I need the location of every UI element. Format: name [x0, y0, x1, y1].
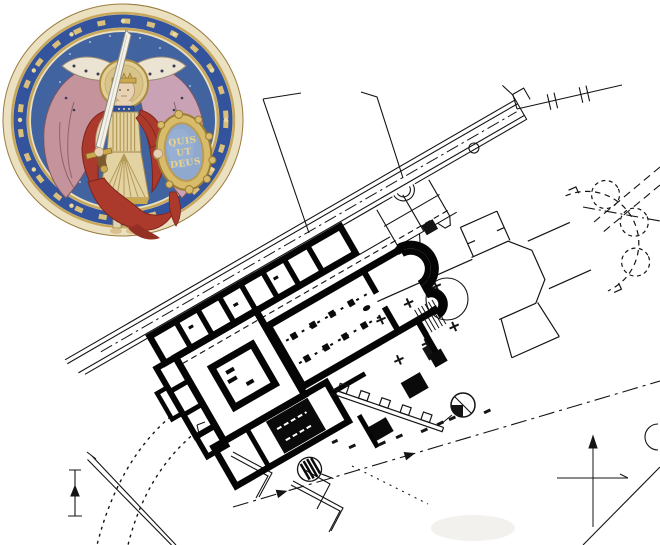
south-thin-walls: [87, 452, 428, 545]
tree-circle-icon: [293, 451, 333, 493]
dotted-arc: [97, 417, 196, 545]
corner-line: [583, 467, 660, 545]
st-michael-medallion: QUIS UT DEUS: [0, 2, 248, 244]
north-cross-icon: [557, 436, 628, 527]
boundary-lines: [263, 85, 622, 233]
shield-line-2: UT: [176, 147, 193, 159]
pommel: [101, 166, 108, 173]
west-range: [157, 357, 216, 436]
c-arc: [645, 424, 658, 450]
paper-smudge: [431, 515, 515, 541]
gallery-niche: [394, 184, 419, 205]
north-transept: [460, 211, 510, 257]
centerline-arrow-icon: [276, 490, 286, 497]
survey-benchmark-icon: [441, 393, 475, 424]
chevet-apse: [566, 175, 656, 291]
composite-image: QUIS UT DEUS: [0, 0, 660, 545]
centerline-arrow-icon: [404, 453, 414, 460]
leveling-staff-icon: [68, 470, 82, 516]
ne-dashed-road: [594, 167, 660, 233]
ne-dashdot: [583, 207, 660, 221]
sword-hand: [95, 148, 104, 157]
south-transept: [496, 300, 560, 358]
choir-walls: [528, 222, 591, 288]
dark-room: [266, 398, 326, 454]
cloister-garth: [212, 344, 276, 407]
radiating-chapels: [587, 170, 660, 281]
stone-marks: [331, 408, 491, 449]
existing-cathedral-plan: [355, 156, 660, 402]
